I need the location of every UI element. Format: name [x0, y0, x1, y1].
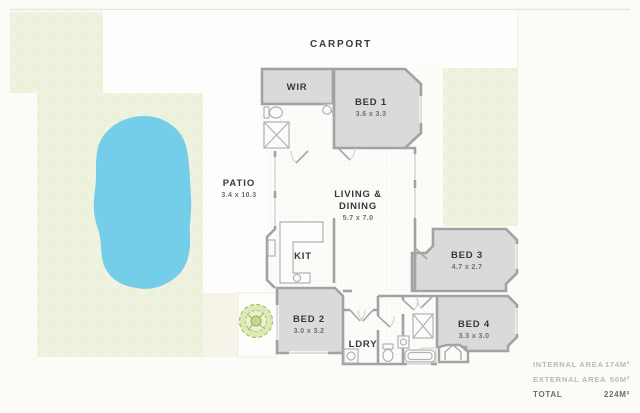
patio-dims: 3.4 x 10.3 [221, 192, 256, 199]
basin-icon [323, 106, 331, 114]
external-area-label: EXTERNAL AREA [533, 375, 606, 384]
bed3-label: BED 3 [451, 250, 483, 261]
pool-shape [94, 116, 191, 289]
floor-plan-canvas: CARPORT PATIO 3.4 x 10.3 [0, 0, 640, 413]
toilet-tank [264, 107, 269, 118]
floorplan-page: CARPORT PATIO 3.4 x 10.3 [0, 0, 640, 413]
vanity-basin [401, 339, 407, 345]
entry-porch [439, 345, 468, 362]
bed2-dims: 3.0 x 3.2 [294, 328, 325, 335]
carport-label: CARPORT [310, 39, 372, 50]
garden-strip [203, 293, 238, 357]
washer-drum [347, 352, 355, 360]
ldry-label: LDRY [349, 339, 378, 350]
internal-area-label: INTERNAL AREA [533, 360, 604, 369]
fridge-icon [268, 240, 275, 256]
bed1-dims: 3.6 x 3.3 [356, 111, 387, 118]
plant-icon [240, 305, 273, 338]
grass-right [443, 68, 518, 226]
grass-top-left [10, 12, 103, 93]
total-area-value: 224M² [604, 390, 630, 399]
room-bed1 [334, 69, 421, 148]
wc-toilet-icon [383, 350, 393, 362]
bed4-label: BED 4 [458, 319, 490, 330]
wir-label: WIR [287, 82, 308, 93]
bed3-dims: 4.7 x 2.7 [452, 264, 483, 271]
living-label-line1: LIVING & [334, 189, 382, 200]
bed1-label: BED 1 [355, 97, 387, 108]
kitchen-sink-icon [293, 274, 300, 281]
wc-toilet-tank [383, 344, 393, 349]
bed2-label: BED 2 [293, 314, 325, 325]
driveway-slab [103, 10, 203, 94]
kit-label: KIT [294, 251, 312, 262]
toilet-icon [270, 107, 283, 118]
living-dims: 5.7 x 7.0 [343, 215, 374, 222]
area-table: INTERNAL AREA 174M² EXTERNAL AREA 50M² T… [533, 360, 630, 399]
bed4-dims: 3.3 x 3.0 [459, 333, 490, 340]
living-label-line2: DINING [339, 201, 377, 212]
bathtub-icon [405, 350, 435, 362]
side-slab [443, 10, 518, 69]
patio-label: PATIO [223, 178, 256, 189]
internal-area-value: 174M² [605, 360, 630, 369]
total-area-label: TOTAL [533, 390, 562, 399]
external-area-value: 50M² [610, 375, 630, 384]
